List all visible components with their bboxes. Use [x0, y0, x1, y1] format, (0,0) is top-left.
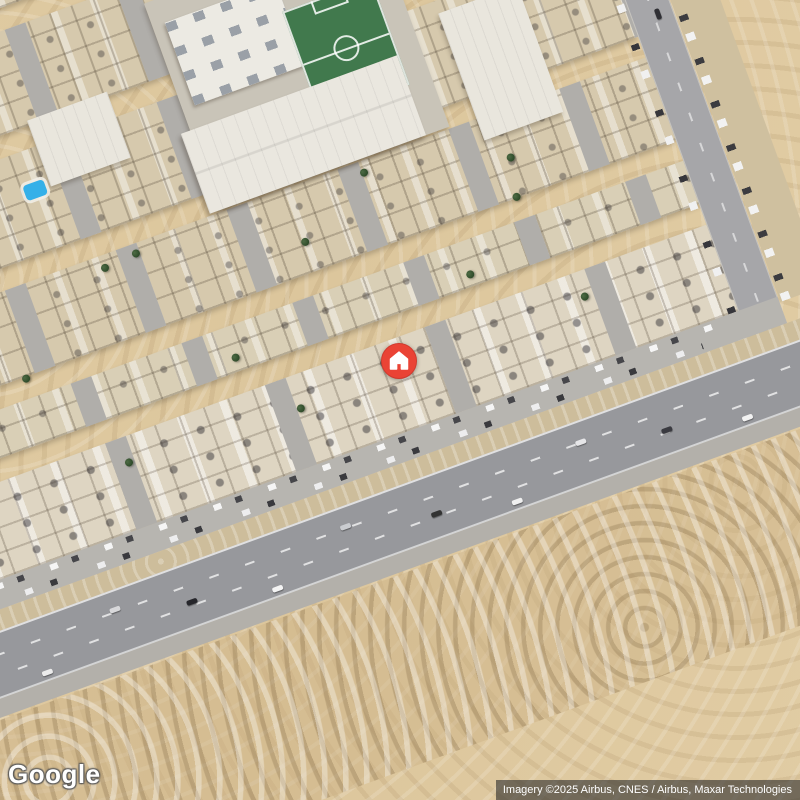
map-canvas[interactable]: Google Imagery ©2025 Airbus, CNES / Airb…	[0, 0, 800, 800]
satellite-imagery-layer	[0, 0, 800, 800]
attribution-bar: Imagery ©2025 Airbus, CNES / Airbus, Max…	[496, 780, 800, 800]
home-icon	[381, 343, 417, 379]
field-center-circle	[329, 32, 362, 65]
google-logo[interactable]: Google	[8, 759, 101, 790]
field-goal-box	[310, 0, 349, 15]
attribution-text: Imagery ©2025 Airbus, CNES / Airbus, Max…	[503, 784, 792, 796]
location-marker[interactable]	[381, 343, 417, 379]
